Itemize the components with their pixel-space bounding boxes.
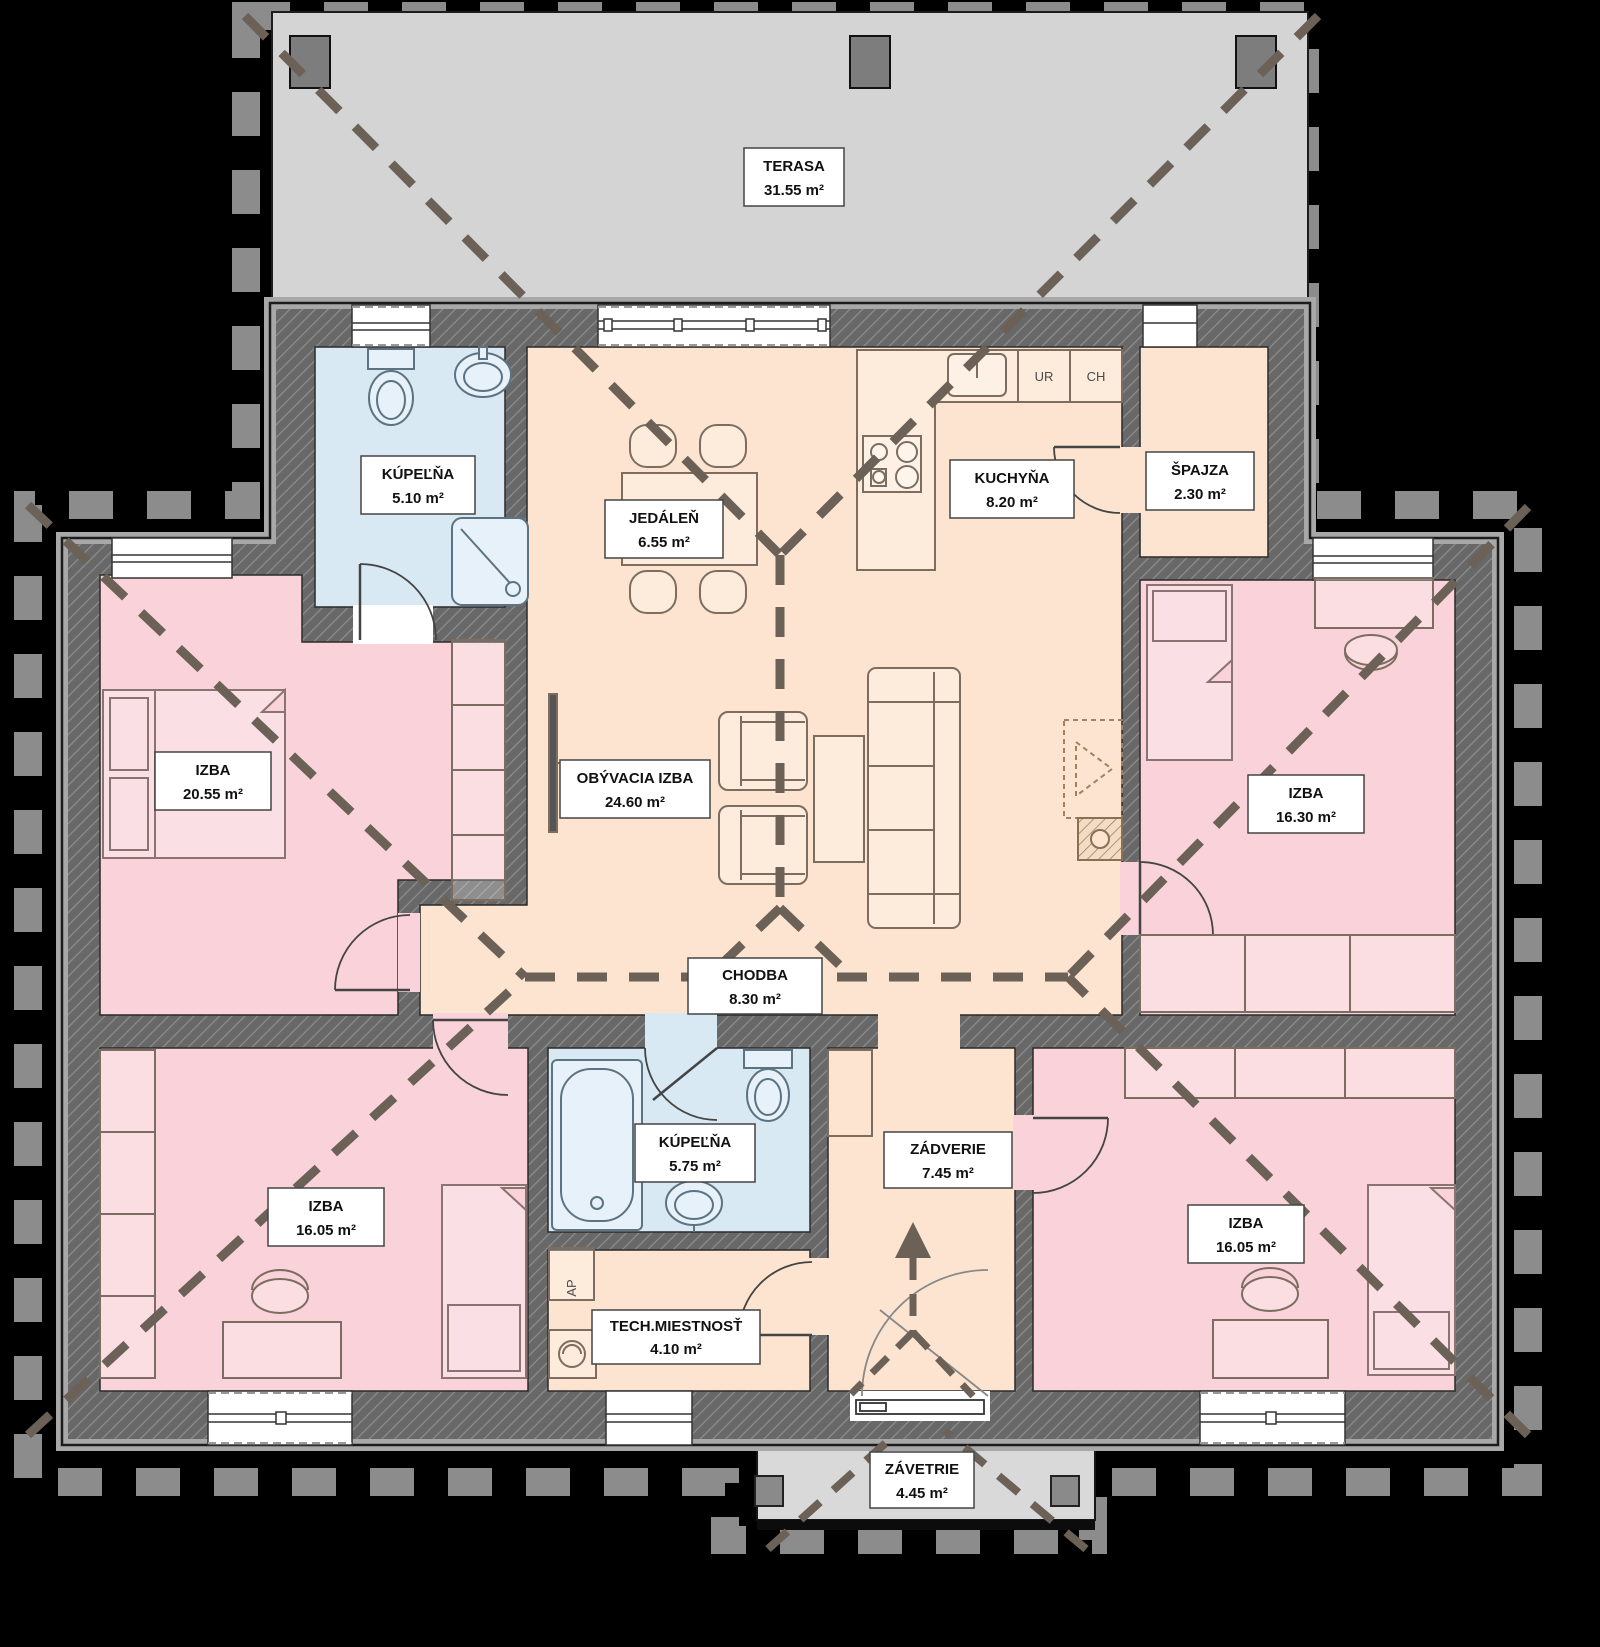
svg-text:IZBA: IZBA	[1289, 785, 1324, 802]
appliance-ur-label: UR	[1035, 369, 1054, 384]
svg-text:ŠPAJZA: ŠPAJZA	[1171, 461, 1229, 479]
desk-icon	[223, 1322, 341, 1378]
svg-text:IZBA: IZBA	[309, 1198, 344, 1215]
room-label-kuchyna: KUCHYŇA 8.20 m²	[950, 460, 1074, 518]
wardrobe-icon	[1140, 935, 1455, 1012]
svg-text:2.30 m²: 2.30 m²	[1174, 486, 1226, 503]
armchair-icon	[719, 806, 807, 884]
appliance-ap-label: AP	[564, 1279, 579, 1296]
svg-text:24.60 m²: 24.60 m²	[605, 794, 665, 811]
room-label-izba-left: IZBA 20.55 m²	[155, 752, 271, 810]
shower-icon	[452, 518, 528, 605]
svg-text:16.05 m²: 16.05 m²	[1216, 1239, 1276, 1256]
sofa-icon	[868, 668, 960, 928]
svg-text:16.30 m²: 16.30 m²	[1276, 809, 1336, 826]
room-label-obyvacia: OBÝVACIA IZBA 24.60 m²	[560, 760, 710, 818]
armchair-icon	[719, 712, 807, 790]
opening-zadverie	[878, 1013, 960, 1050]
floorplan-drawing: TERASA 31.55 m² KÚPEĽŇA 5.10 m² JEDÁLEŇ …	[0, 0, 1600, 1647]
chair-icon	[630, 571, 676, 613]
room-label-zadverie: ZÁDVERIE 7.45 m²	[884, 1132, 1012, 1188]
room-label-zavetrie: ZÁVETRIE 4.45 m²	[870, 1452, 974, 1508]
svg-text:5.75 m²: 5.75 m²	[669, 1158, 721, 1175]
room-label-kupelna-top: KÚPEĽŇA 5.10 m²	[361, 456, 475, 514]
window-icon	[352, 305, 430, 347]
svg-text:4.45 m²: 4.45 m²	[896, 1485, 948, 1502]
room-label-chodba: CHODBA 8.30 m²	[688, 958, 822, 1014]
svg-text:ZÁDVERIE: ZÁDVERIE	[910, 1141, 986, 1158]
svg-text:ZÁVETRIE: ZÁVETRIE	[885, 1461, 959, 1478]
wardrobe-icon	[452, 640, 505, 900]
terrace-post-icon	[850, 36, 890, 88]
svg-text:16.05 m²: 16.05 m²	[296, 1222, 356, 1239]
svg-text:OBÝVACIA IZBA: OBÝVACIA IZBA	[577, 769, 694, 787]
svg-text:6.55 m²: 6.55 m²	[638, 534, 690, 551]
single-bed-icon	[442, 1185, 526, 1378]
room-label-izba-bottom-left: IZBA 16.05 m²	[268, 1188, 384, 1246]
svg-text:5.10 m²: 5.10 m²	[392, 490, 444, 507]
svg-text:KÚPEĽŇA: KÚPEĽŇA	[659, 1133, 732, 1151]
svg-text:20.55 m²: 20.55 m²	[183, 786, 243, 803]
porch-post-icon	[755, 1476, 783, 1506]
bathtub-icon	[552, 1060, 642, 1230]
window-icon	[1143, 305, 1197, 347]
window-icon	[112, 538, 232, 578]
washing-machine-icon	[549, 1330, 596, 1378]
room-label-jedalen: JEDÁLEŇ 6.55 m²	[605, 500, 723, 558]
window-icon	[208, 1391, 352, 1445]
svg-text:IZBA: IZBA	[196, 762, 231, 779]
coffee-table-icon	[814, 736, 864, 862]
svg-text:7.45 m²: 7.45 m²	[922, 1165, 974, 1182]
svg-text:TECH.MIESTNOSŤ: TECH.MIESTNOSŤ	[610, 1317, 743, 1335]
room-label-tech: TECH.MIESTNOSŤ 4.10 m²	[592, 1310, 760, 1364]
window-icon	[1200, 1391, 1345, 1445]
svg-text:CHODBA: CHODBA	[722, 967, 788, 984]
svg-text:IZBA: IZBA	[1229, 1215, 1264, 1232]
chair-icon	[700, 425, 746, 467]
window-icon	[1313, 538, 1433, 580]
chair-icon	[700, 571, 746, 613]
wardrobe-icon	[1125, 1048, 1455, 1098]
svg-text:JEDÁLEŇ: JEDÁLEŇ	[629, 509, 699, 527]
svg-text:8.30 m²: 8.30 m²	[729, 991, 781, 1008]
room-label-kupelna-bottom: KÚPEĽŇA 5.75 m²	[635, 1124, 755, 1182]
svg-text:KÚPEĽŇA: KÚPEĽŇA	[382, 465, 455, 483]
window-icon	[598, 305, 830, 347]
toilet-icon	[744, 1050, 792, 1121]
room-label-terasa: TERASA 31.55 m²	[744, 148, 844, 206]
single-bed-icon	[1147, 585, 1232, 760]
appliance-ch-label: CH	[1087, 369, 1106, 384]
svg-text:8.20 m²: 8.20 m²	[986, 494, 1038, 511]
svg-text:KUCHYŇA: KUCHYŇA	[975, 469, 1050, 487]
desk-icon	[1213, 1320, 1328, 1378]
toilet-icon	[368, 349, 414, 425]
porch-post-icon	[1051, 1476, 1079, 1506]
room-label-spajza: ŠPAJZA 2.30 m²	[1146, 452, 1254, 510]
room-label-izba-right: IZBA 16.30 m²	[1248, 775, 1364, 833]
svg-text:4.10 m²: 4.10 m²	[650, 1341, 702, 1358]
svg-text:TERASA: TERASA	[763, 158, 825, 175]
floorplan-canvas: TERASA 31.55 m² KÚPEĽŇA 5.10 m² JEDÁLEŇ …	[0, 0, 1600, 1647]
window-icon	[606, 1391, 692, 1445]
svg-text:31.55 m²: 31.55 m²	[764, 182, 824, 199]
room-label-izba-bottom-right: IZBA 16.05 m²	[1188, 1205, 1304, 1263]
